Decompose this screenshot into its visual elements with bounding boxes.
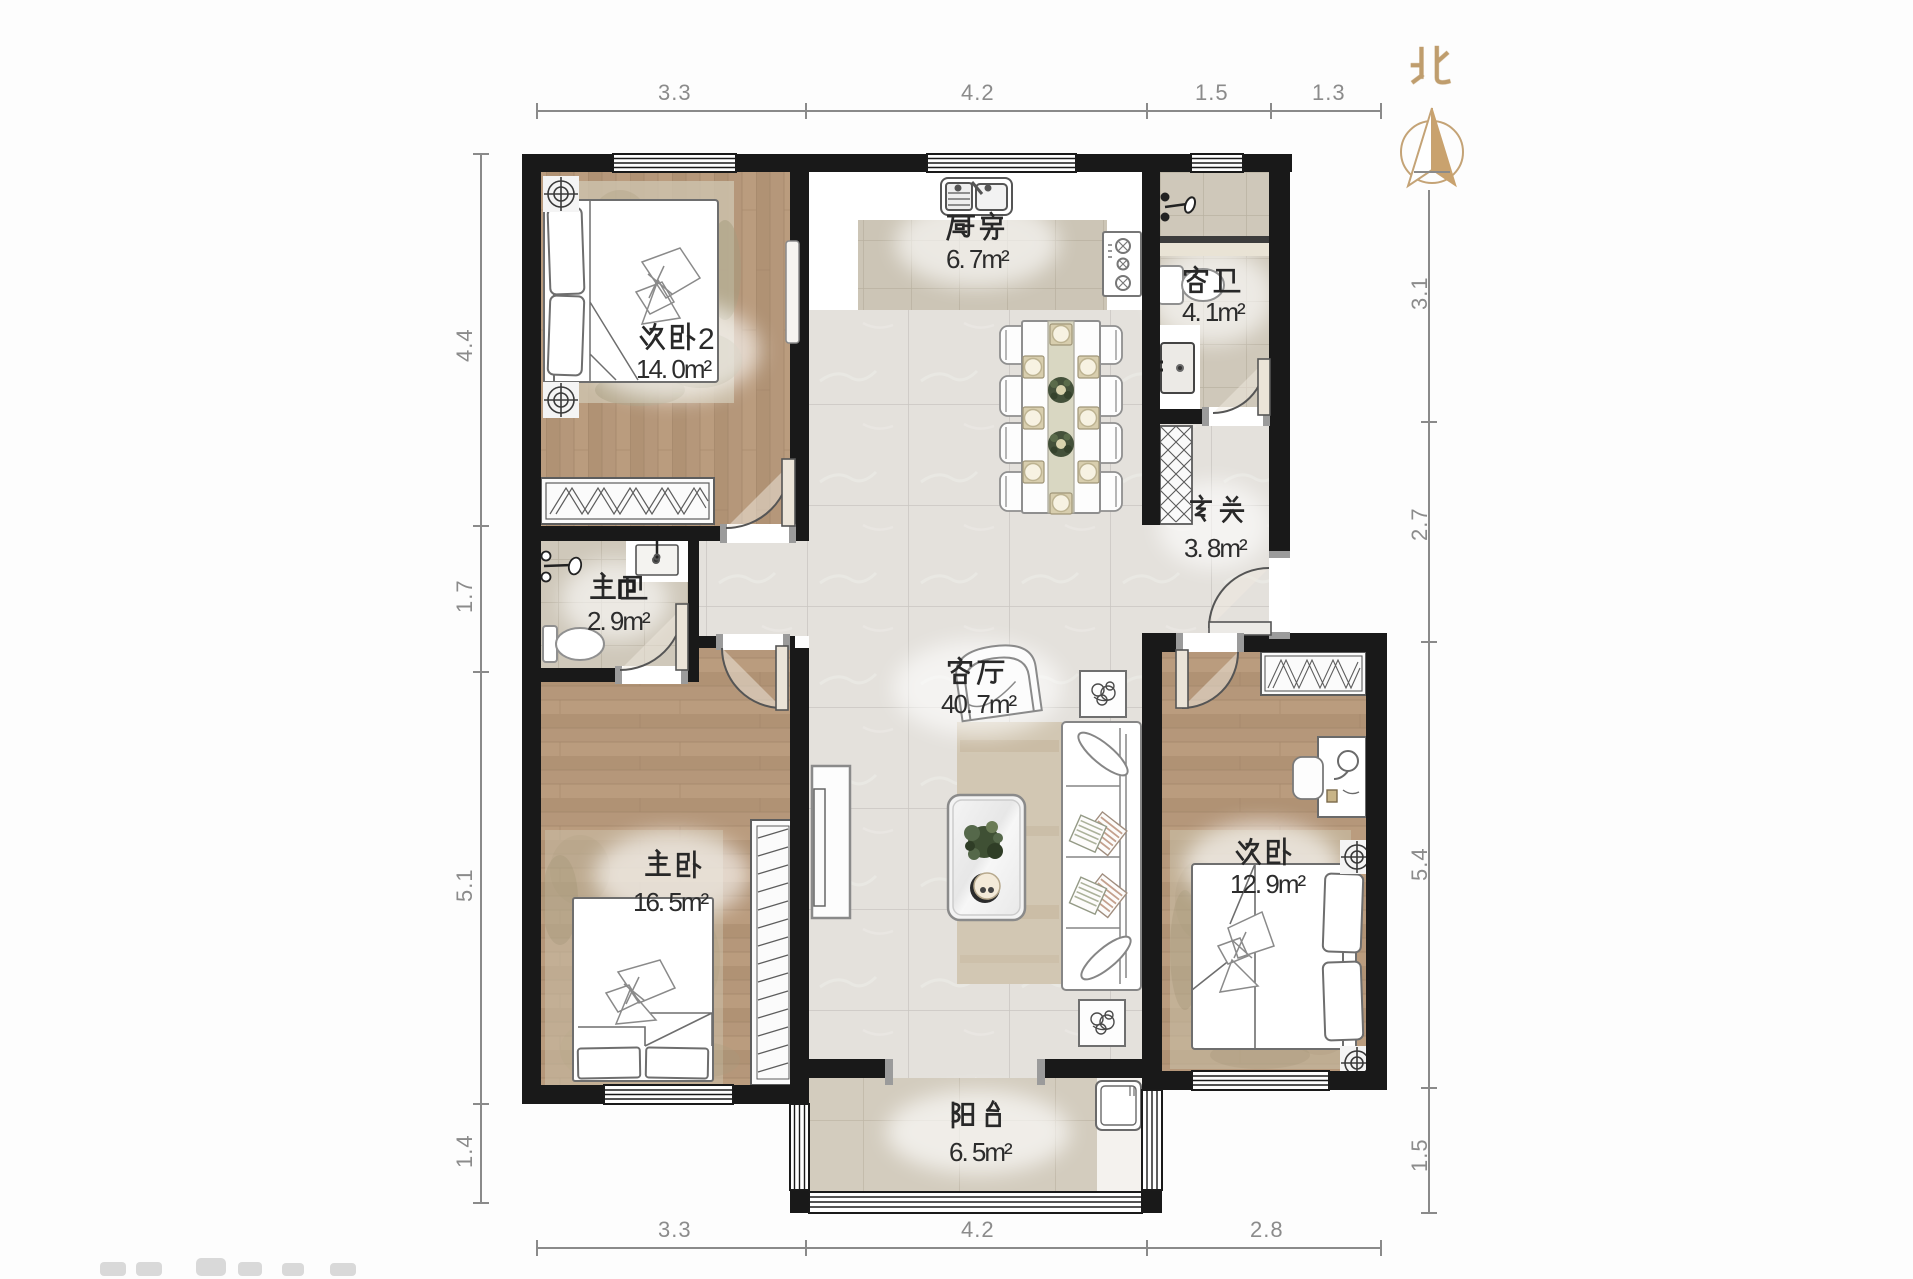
- svg-text:3.3: 3.3: [658, 80, 692, 105]
- svg-text:14. 0m²: 14. 0m²: [636, 354, 712, 384]
- svg-text:4. 1m²: 4. 1m²: [1182, 297, 1246, 327]
- svg-text:3.1: 3.1: [1407, 276, 1432, 310]
- svg-text:5.4: 5.4: [1407, 847, 1432, 881]
- svg-text:2.8: 2.8: [1250, 1217, 1284, 1242]
- svg-text:3. 8m²: 3. 8m²: [1184, 533, 1248, 563]
- svg-text:2: 2: [698, 323, 715, 356]
- svg-text:40. 7m²: 40. 7m²: [941, 689, 1017, 719]
- svg-text:1.5: 1.5: [1195, 80, 1229, 105]
- svg-text:1.4: 1.4: [452, 1134, 477, 1168]
- svg-text:16. 5m²: 16. 5m²: [633, 887, 709, 917]
- svg-text:1.7: 1.7: [452, 579, 477, 613]
- svg-text:2.7: 2.7: [1407, 507, 1432, 541]
- svg-text:6. 7m²: 6. 7m²: [946, 244, 1010, 274]
- svg-text:4.2: 4.2: [961, 80, 995, 105]
- svg-text:12. 9m²: 12. 9m²: [1230, 869, 1306, 899]
- svg-text:4.2: 4.2: [961, 1217, 995, 1242]
- svg-text:1.3: 1.3: [1312, 80, 1346, 105]
- svg-text:2. 9m²: 2. 9m²: [587, 606, 651, 636]
- svg-text:1.5: 1.5: [1407, 1138, 1432, 1172]
- svg-text:4.4: 4.4: [452, 328, 477, 362]
- svg-text:3.3: 3.3: [658, 1217, 692, 1242]
- svg-text:6. 5m²: 6. 5m²: [949, 1137, 1013, 1167]
- svg-text:5.1: 5.1: [452, 868, 477, 902]
